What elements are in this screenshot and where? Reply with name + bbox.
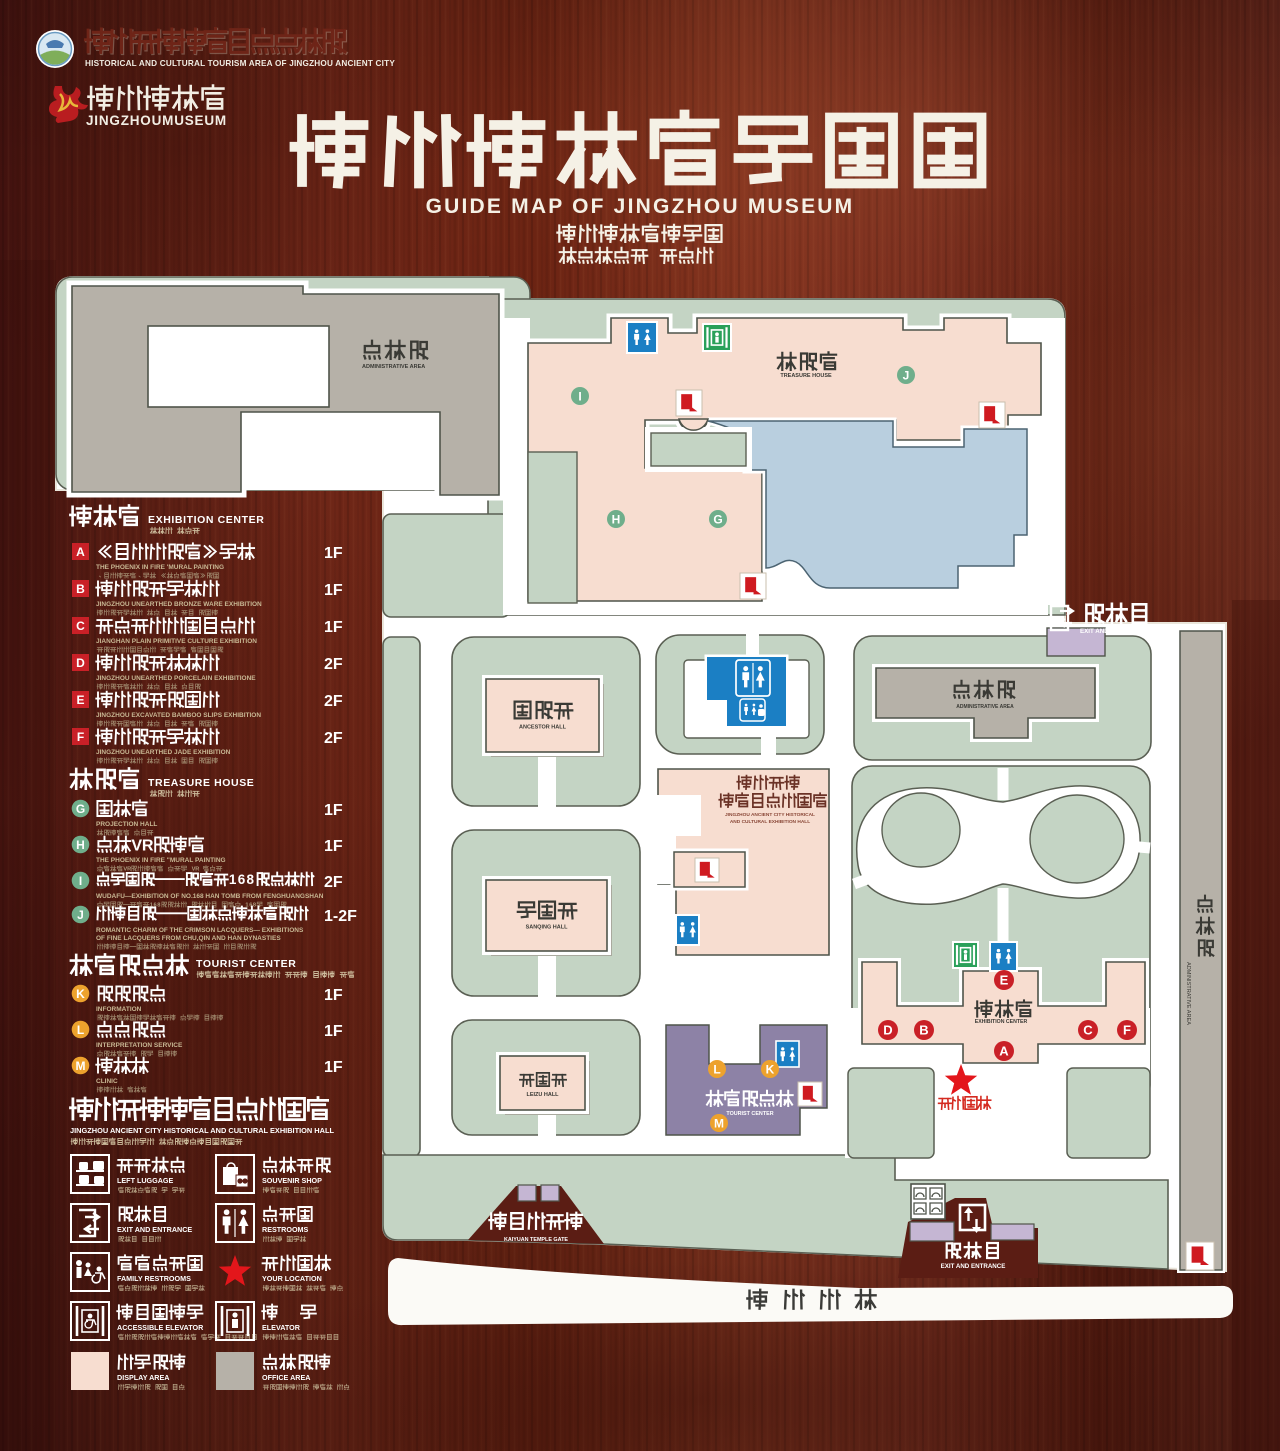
svg-text:C: C — [76, 619, 85, 633]
svg-text:2F: 2F — [324, 656, 343, 673]
svg-text:G: G — [713, 512, 722, 526]
svg-text:I: I — [578, 389, 581, 403]
svg-text:1F: 1F — [324, 987, 343, 1004]
svg-text:8: 8 — [247, 872, 255, 887]
svg-text:SANQING HALL: SANQING HALL — [526, 925, 569, 931]
svg-text:OF FINE LACQUERS FROM CHU,QIN: OF FINE LACQUERS FROM CHU,QIN AND HAN DY… — [96, 935, 281, 942]
svg-text:1: 1 — [229, 872, 237, 887]
svg-text:JINGZHOU ANCIENT CITY HISTORIC: JINGZHOU ANCIENT CITY HISTORICAL — [725, 812, 815, 818]
svg-text:TOURIST CENTER: TOURIST CENTER — [726, 1111, 773, 1117]
svg-text:F: F — [77, 730, 84, 744]
svg-text:J: J — [903, 368, 910, 382]
svg-text:1F: 1F — [324, 619, 343, 636]
svg-text:6: 6 — [238, 872, 246, 887]
svg-text:ADMINISTRATIVE AREA: ADMINISTRATIVE AREA — [1185, 962, 1191, 1025]
svg-text:M: M — [76, 1059, 86, 1073]
svg-text:EXIT AND ENTRANCE: EXIT AND ENTRANCE — [1080, 628, 1145, 635]
svg-text:JINGZHOU UNEARTHED PORCELAIN E: JINGZHOU UNEARTHED PORCELAIN EXHIBITIONE — [96, 675, 256, 682]
svg-text:8: 8 — [253, 903, 256, 909]
svg-text:ROMANTIC CHARM OF THE CRIMSON: ROMANTIC CHARM OF THE CRIMSON LACQUERS— … — [96, 927, 304, 934]
svg-text:DISPLAY AREA: DISPLAY AREA — [117, 1373, 169, 1382]
svg-text:ADMINISTRATIVE AREA: ADMINISTRATIVE AREA — [956, 704, 1014, 710]
svg-text:ADMINISTRATIVE AREA: ADMINISTRATIVE AREA — [362, 364, 425, 370]
svg-text:TREASURE HOUSE: TREASURE HOUSE — [780, 373, 832, 379]
svg-text:GUIDE MAP OF JINGZHOU MUSEUM: GUIDE MAP OF JINGZHOU MUSEUM — [426, 195, 855, 218]
svg-text:E: E — [76, 693, 84, 707]
svg-text:1F: 1F — [324, 802, 343, 819]
svg-text:F: F — [1123, 1023, 1131, 1038]
svg-text:RESTROOMS: RESTROOMS — [262, 1225, 309, 1234]
svg-text:1-2F: 1-2F — [324, 908, 357, 925]
svg-text:YOUR LOCATION: YOUR LOCATION — [262, 1274, 322, 1283]
svg-text:8: 8 — [157, 903, 160, 909]
svg-text:AND CULTURAL EXHIBITION HALL: AND CULTURAL EXHIBITION HALL — [730, 819, 810, 825]
svg-text:THE PHOENIX IN FIRE 'MURAL PAI: THE PHOENIX IN FIRE 'MURAL PAINTING — [96, 564, 224, 571]
svg-text:I: I — [79, 874, 82, 888]
svg-text:JIANGHAN PLAIN PRIMITIVE CULTU: JIANGHAN PLAIN PRIMITIVE CULTURE EXHIBIT… — [96, 638, 257, 645]
svg-text:1F: 1F — [324, 545, 343, 562]
svg-text:JINGZHOU ANCIENT CITY HISTORIC: JINGZHOU ANCIENT CITY HISTORICAL AND CUL… — [70, 1126, 334, 1135]
svg-text:2F: 2F — [324, 693, 343, 710]
svg-text:R: R — [142, 836, 154, 854]
svg-text:OFFICE AREA: OFFICE AREA — [262, 1373, 310, 1382]
svg-text:ANCESTOR HALL: ANCESTOR HALL — [519, 725, 567, 731]
svg-text:A: A — [76, 545, 85, 559]
svg-text:C: C — [1083, 1023, 1093, 1038]
svg-text:INFORMATION: INFORMATION — [96, 1006, 142, 1013]
svg-text:1F: 1F — [324, 1023, 343, 1040]
svg-text:D: D — [76, 656, 85, 670]
svg-text:JINGZHOU UNEARTHED JADE EXHIBI: JINGZHOU UNEARTHED JADE EXHIBITION — [96, 749, 231, 756]
svg-text:EXIT AND ENTRANCE: EXIT AND ENTRANCE — [941, 1263, 1006, 1270]
svg-text:K: K — [766, 1062, 775, 1076]
svg-text:H: H — [612, 512, 621, 526]
svg-text:ELEVATOR: ELEVATOR — [262, 1323, 301, 1332]
svg-text:M: M — [714, 1116, 724, 1130]
svg-text:LEIZU HALL: LEIZU HALL — [526, 1092, 559, 1098]
svg-text:H: H — [76, 838, 85, 852]
svg-text:2F: 2F — [324, 730, 343, 747]
svg-text:E: E — [1000, 973, 1009, 988]
svg-text:FAMILY RESTROOMS: FAMILY RESTROOMS — [117, 1274, 191, 1283]
svg-text:L: L — [713, 1062, 720, 1076]
svg-text:EXHIBITION CENTER: EXHIBITION CENTER — [975, 1019, 1028, 1025]
svg-text:R: R — [127, 867, 131, 873]
svg-text:A: A — [999, 1044, 1009, 1059]
svg-text:ACCESSIBLE ELEVATOR: ACCESSIBLE ELEVATOR — [117, 1323, 204, 1332]
svg-text:EXIT AND ENTRANCE: EXIT AND ENTRANCE — [117, 1225, 192, 1234]
svg-text:LEFT LUGGAGE: LEFT LUGGAGE — [117, 1176, 174, 1185]
svg-text:L: L — [77, 1023, 84, 1037]
svg-text:EXHIBITION CENTER: EXHIBITION CENTER — [148, 514, 264, 526]
svg-text:HISTORICAL AND CULTURAL TOURIS: HISTORICAL AND CULTURAL TOURISM AREA OF … — [85, 59, 395, 68]
svg-text:THE PHOENIX IN FIRE "MURAL PAI: THE PHOENIX IN FIRE "MURAL PAINTING — [96, 857, 226, 864]
svg-text:INTERPRETATION SERVICE: INTERPRETATION SERVICE — [96, 1042, 183, 1049]
svg-text:1F: 1F — [324, 1059, 343, 1076]
svg-text:G: G — [76, 802, 85, 816]
svg-text:B: B — [76, 582, 85, 596]
svg-text:SOUVENIR SHOP: SOUVENIR SHOP — [262, 1176, 322, 1185]
svg-text:WUDAFU—EXHIBITION OF NO.168 HA: WUDAFU—EXHIBITION OF NO.168 HAN TOMB FRO… — [96, 893, 324, 900]
svg-text:1F: 1F — [324, 582, 343, 599]
svg-text:1F: 1F — [324, 838, 343, 855]
svg-text:V: V — [131, 836, 142, 854]
svg-text:D: D — [883, 1023, 892, 1038]
svg-text:PROJECTION HALL: PROJECTION HALL — [96, 821, 157, 828]
svg-text:R: R — [195, 867, 199, 873]
svg-text:TOURIST CENTER: TOURIST CENTER — [196, 958, 296, 970]
svg-text:TREASURE HOUSE: TREASURE HOUSE — [148, 777, 254, 789]
svg-text:JINGZHOUMUSEUM: JINGZHOUMUSEUM — [86, 113, 227, 128]
svg-text:JINGZHOU UNEARTHED BRONZE WARE: JINGZHOU UNEARTHED BRONZE WARE EXHIBITIO… — [96, 601, 262, 608]
svg-text:JINGZHOU EXCAVATED BAMBOO SLIP: JINGZHOU EXCAVATED BAMBOO SLIPS EXHIBITI… — [96, 712, 261, 719]
svg-text:B: B — [919, 1023, 928, 1038]
svg-text:K: K — [76, 987, 85, 1001]
svg-text:J: J — [77, 908, 84, 922]
svg-text:2F: 2F — [324, 874, 343, 891]
svg-text:KAIYUAN TEMPLE GATE: KAIYUAN TEMPLE GATE — [504, 1237, 568, 1243]
svg-text:CLINIC: CLINIC — [96, 1078, 118, 1085]
